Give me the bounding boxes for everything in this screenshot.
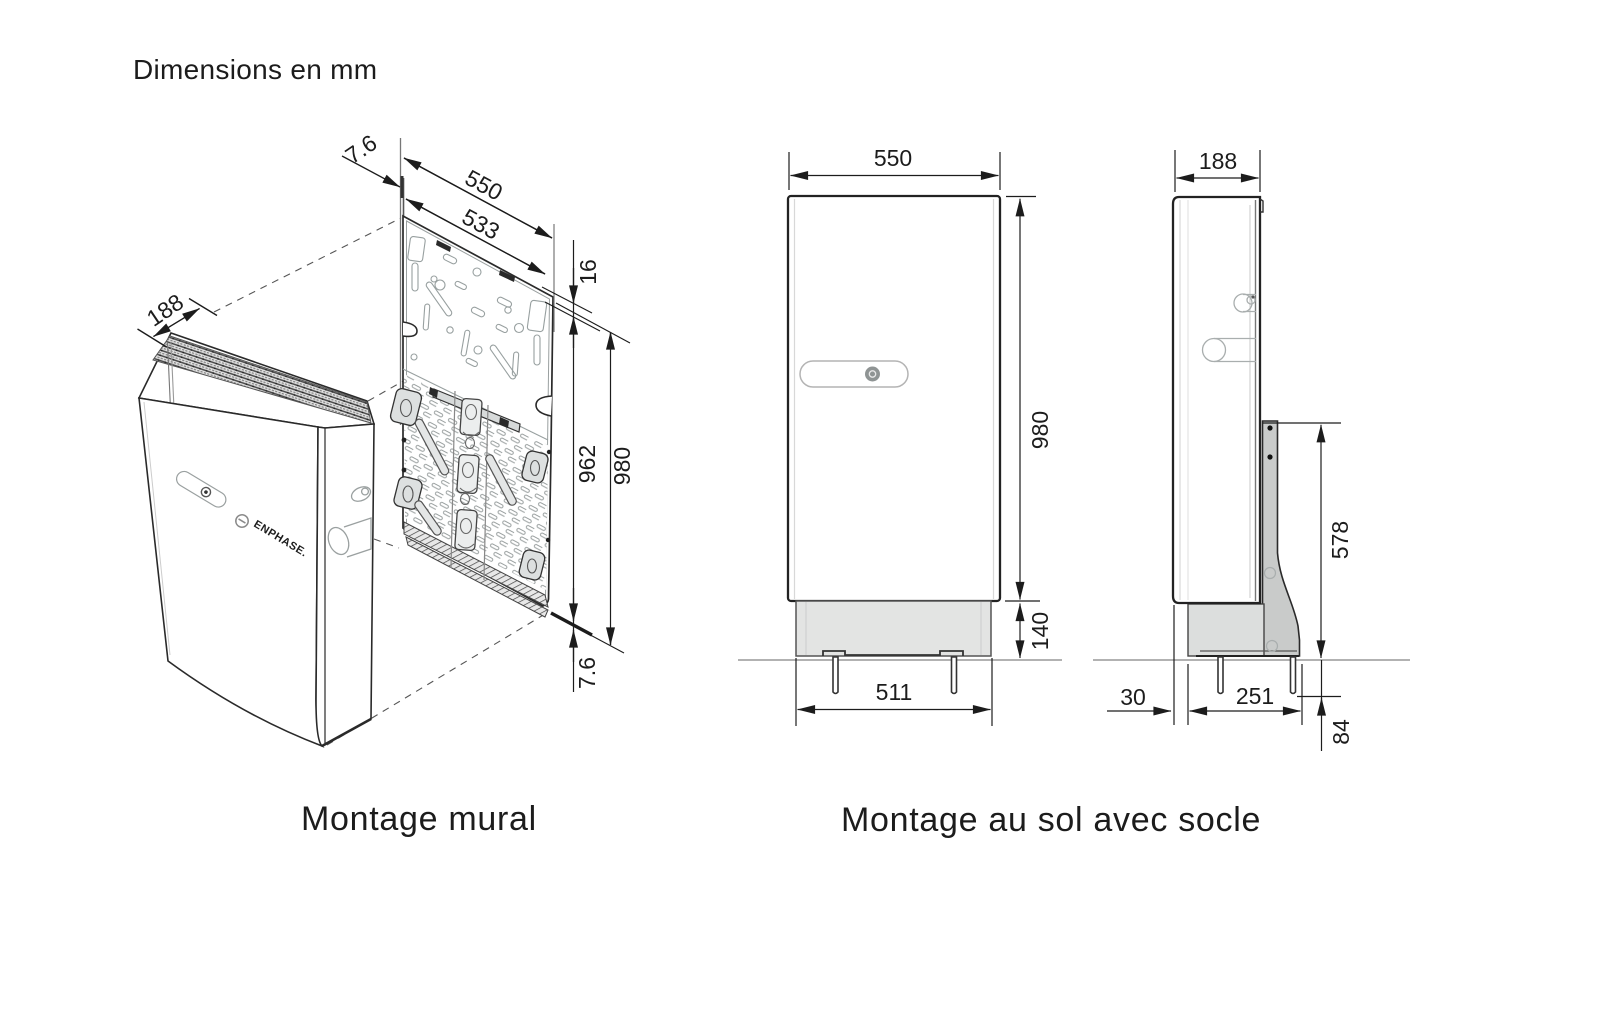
svg-text:7.6: 7.6 xyxy=(574,657,600,689)
svg-text:188: 188 xyxy=(1199,148,1237,174)
svg-text:550: 550 xyxy=(874,145,912,171)
svg-text:7.6: 7.6 xyxy=(341,129,382,168)
svg-text:980: 980 xyxy=(1027,411,1053,449)
svg-text:980: 980 xyxy=(609,447,635,485)
svg-text:Montage mural: Montage mural xyxy=(301,800,537,838)
svg-text:188: 188 xyxy=(142,289,188,332)
svg-text:Dimensions en mm: Dimensions en mm xyxy=(133,54,377,85)
svg-text:511: 511 xyxy=(876,679,913,705)
svg-text:550: 550 xyxy=(461,164,507,205)
svg-text:16: 16 xyxy=(575,259,601,285)
svg-text:533: 533 xyxy=(458,203,504,244)
svg-text:578: 578 xyxy=(1327,521,1353,559)
svg-text:30: 30 xyxy=(1120,684,1146,710)
svg-text:Montage au sol avec socle: Montage au sol avec socle xyxy=(841,801,1261,839)
svg-text:140: 140 xyxy=(1027,612,1053,650)
svg-text:84: 84 xyxy=(1328,719,1354,745)
svg-text:962: 962 xyxy=(574,445,600,483)
svg-text:251: 251 xyxy=(1236,683,1274,709)
